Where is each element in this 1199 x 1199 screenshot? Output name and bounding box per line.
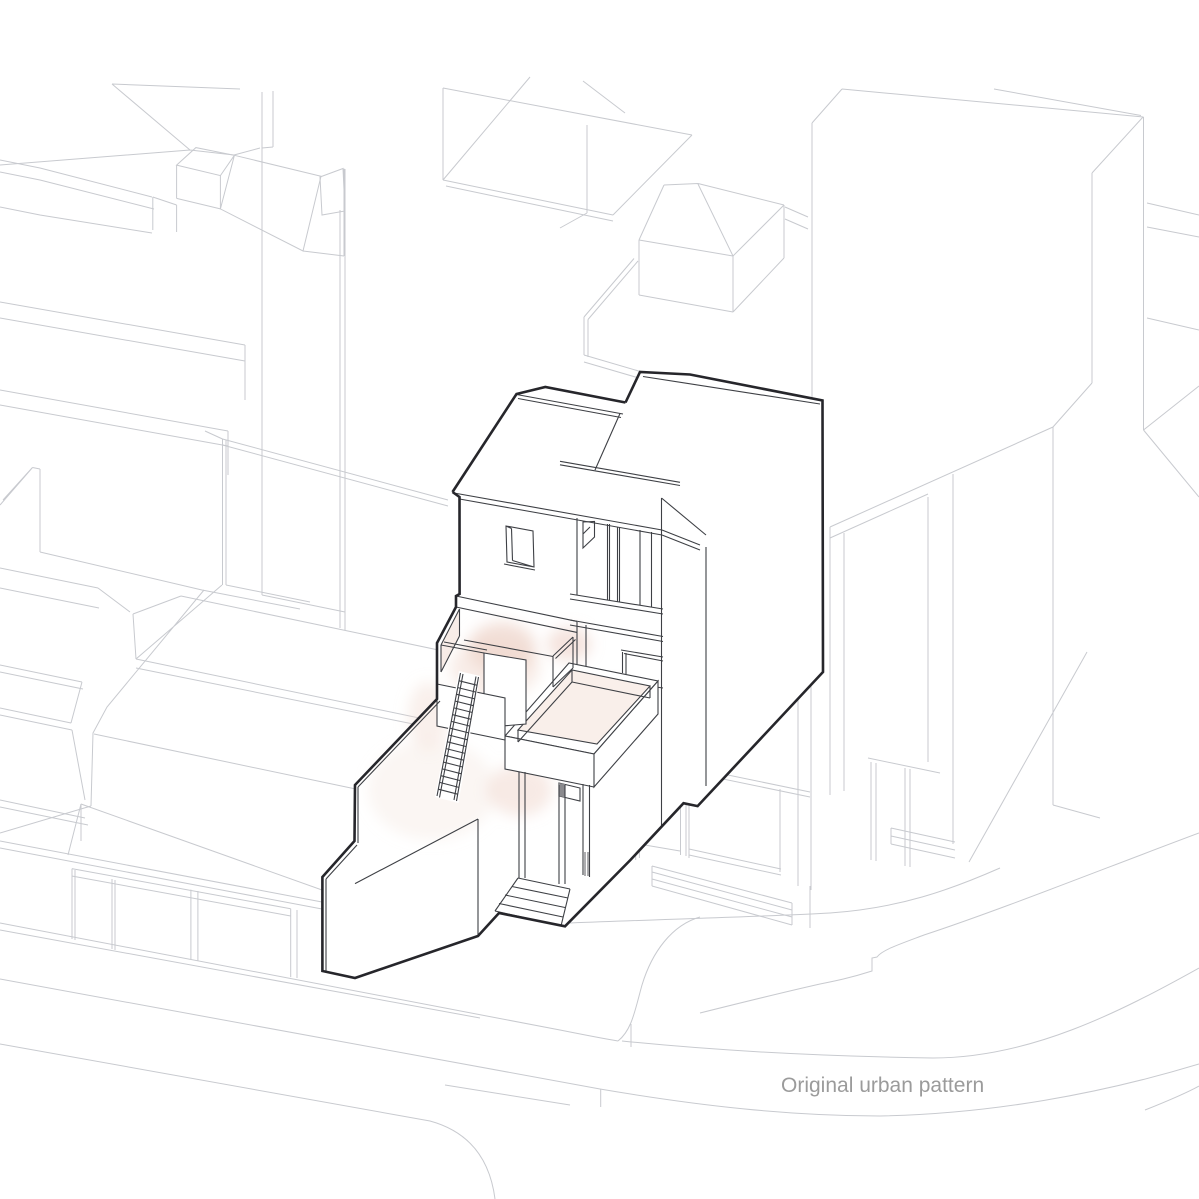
svg-text:Original urban pattern: Original urban pattern	[781, 1074, 984, 1097]
